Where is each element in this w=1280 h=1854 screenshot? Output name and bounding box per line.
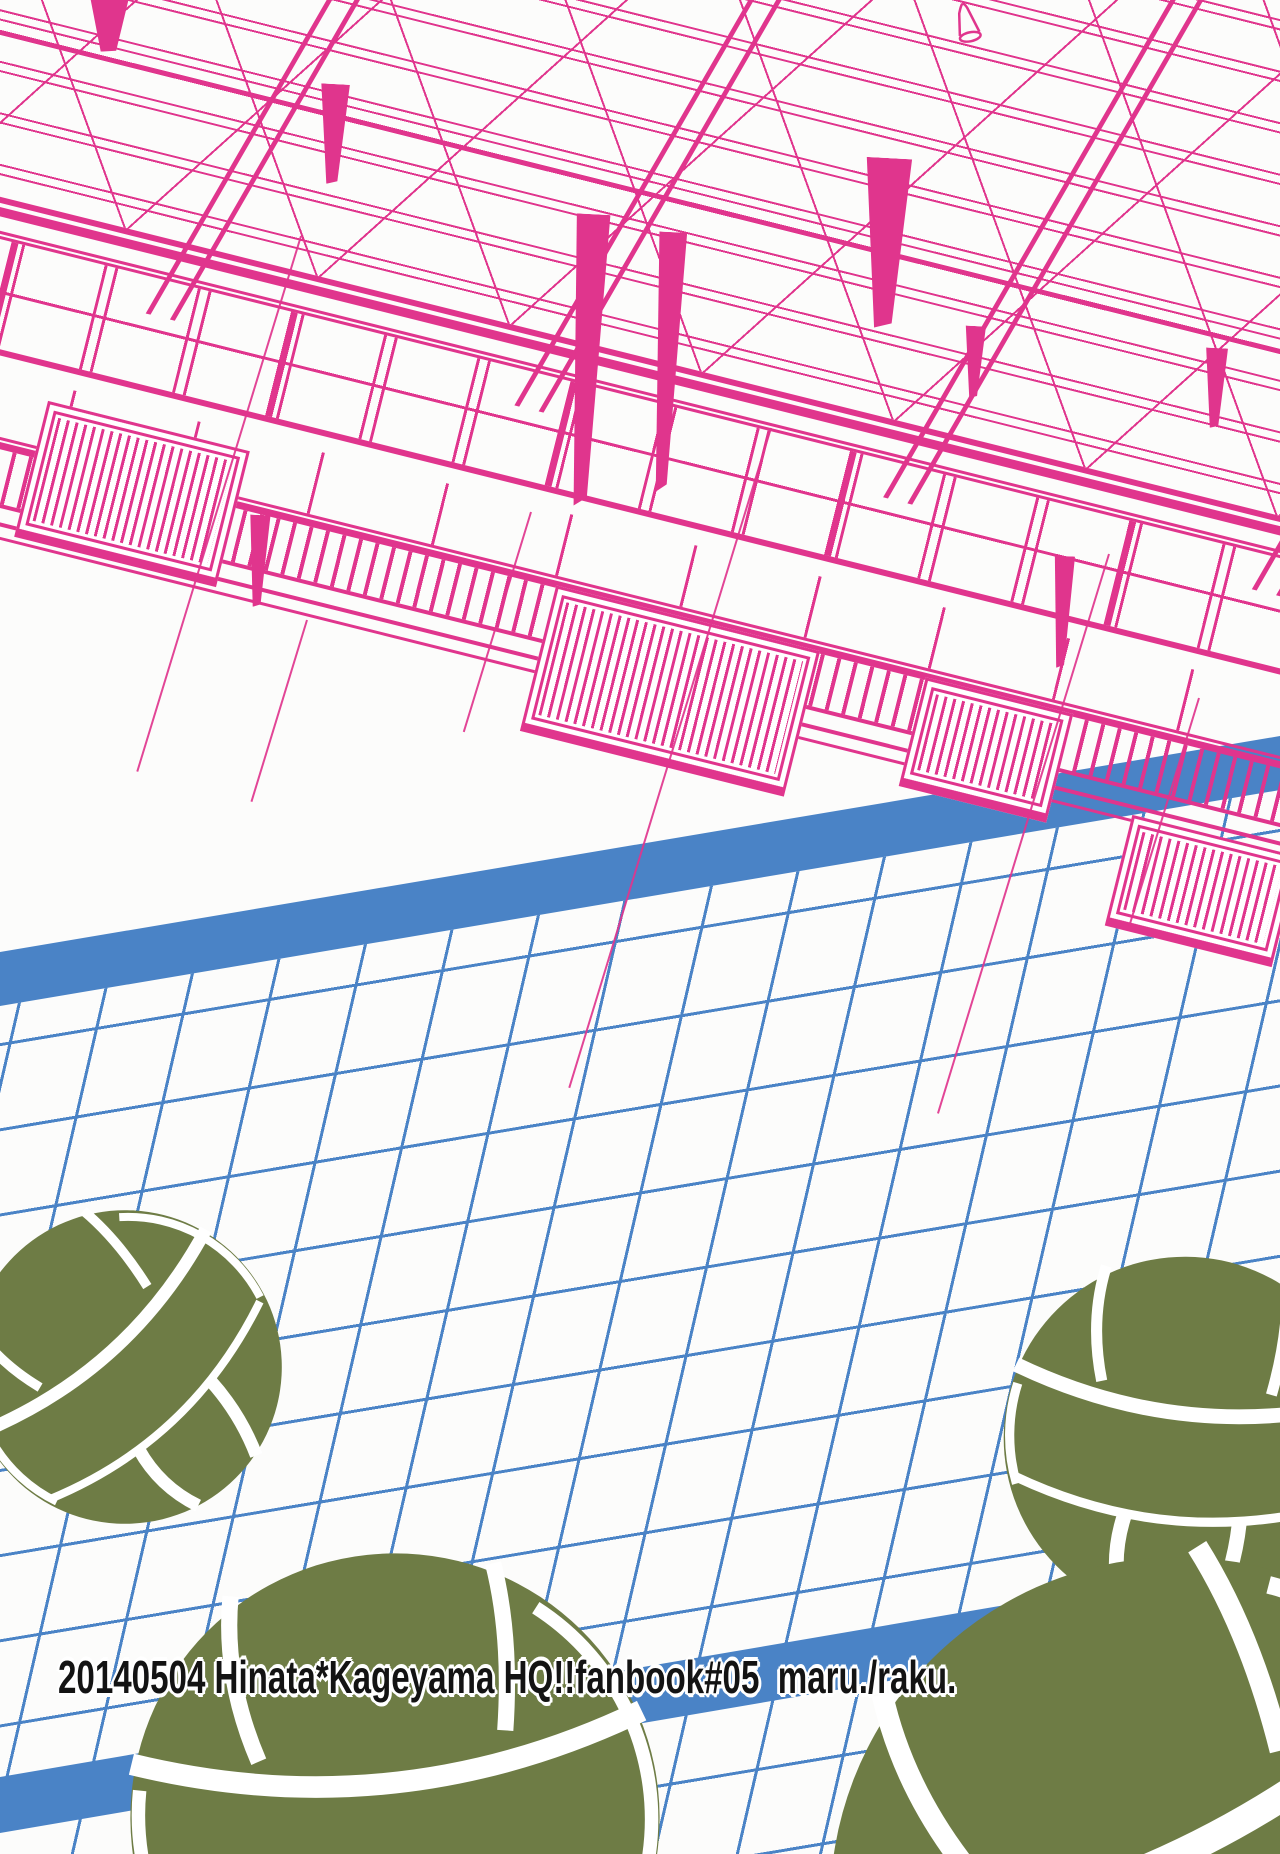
bleacher-slats (1123, 832, 1280, 944)
bleacher-slats (33, 418, 233, 564)
bleacher-slats (917, 694, 1056, 800)
volleyball-icon (0, 1146, 346, 1589)
credit-line: 20140504 Hinata*Kageyama HQ!!fanbook#05 … (58, 1652, 956, 1703)
hanging-lamp-icon (946, 0, 990, 52)
doujinshi-back-cover: 20140504 Hinata*Kageyama HQ!!fanbook#05 … (0, 0, 1280, 1854)
